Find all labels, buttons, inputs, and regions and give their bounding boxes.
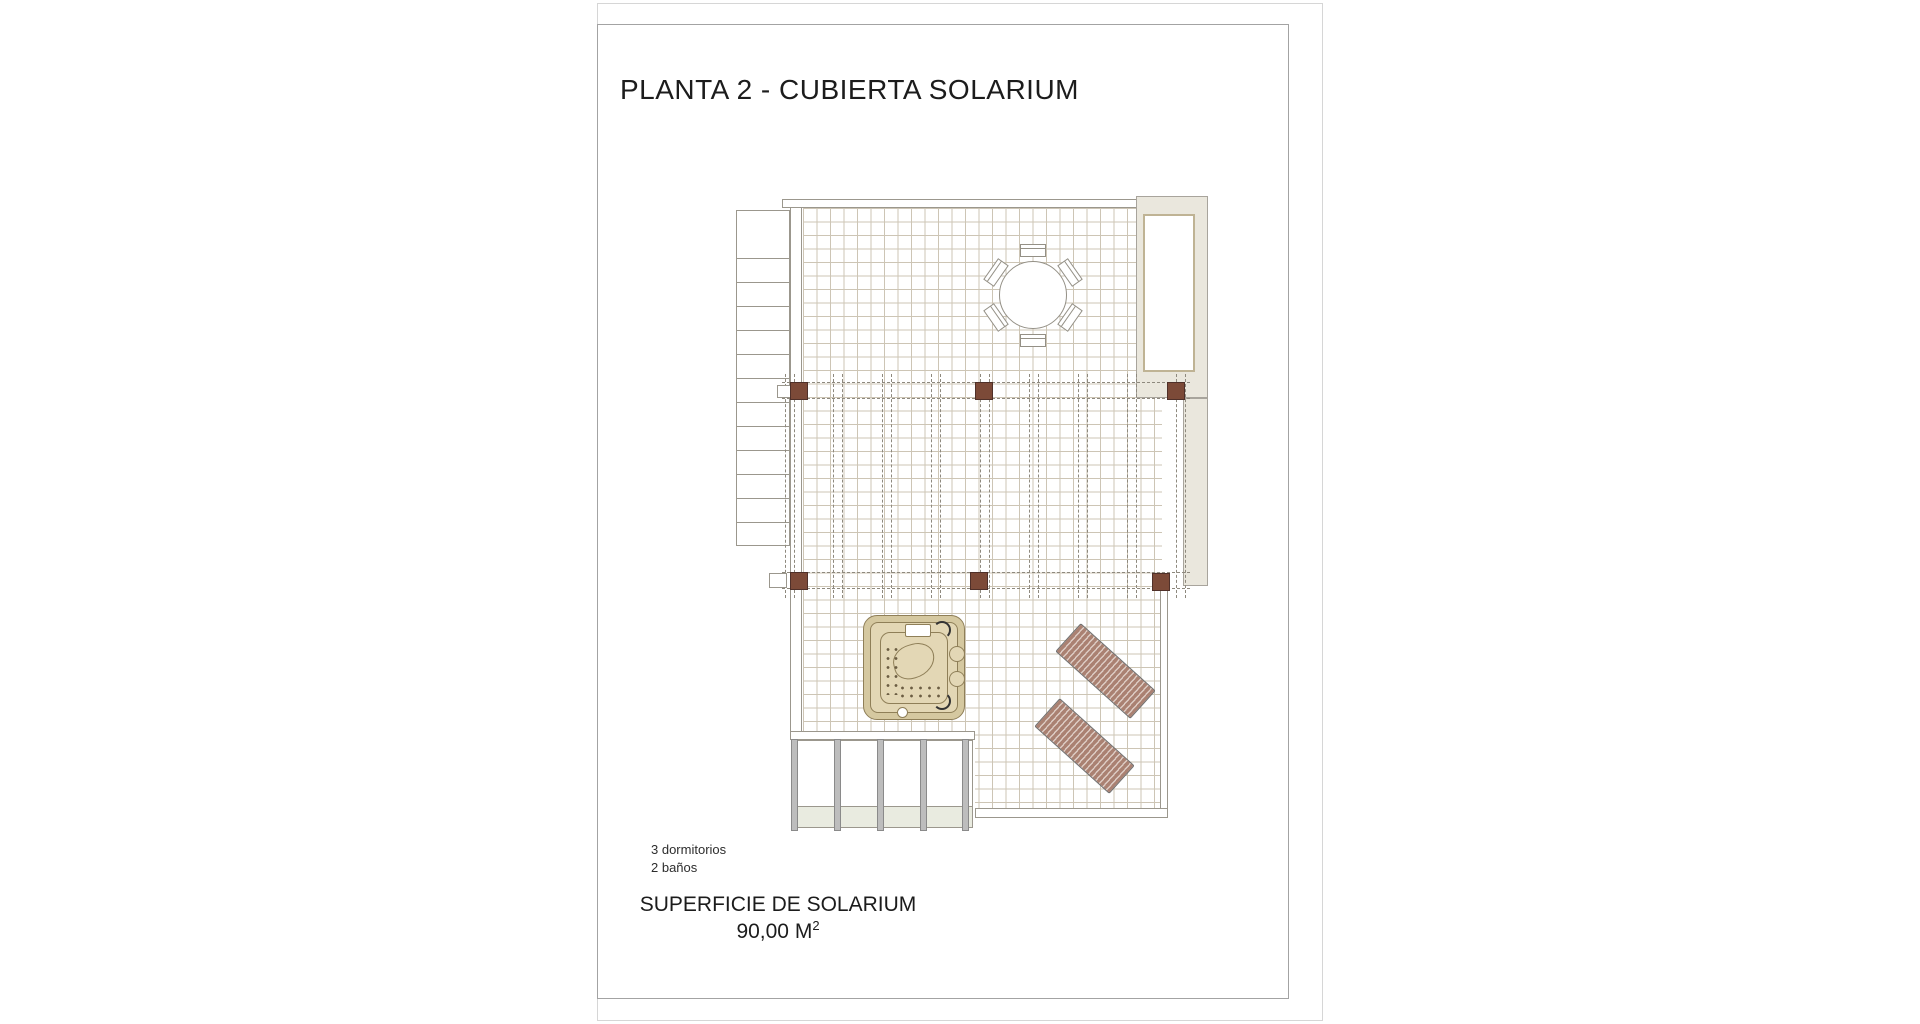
wall-top (782, 199, 1138, 208)
pergola-rafter (1029, 374, 1039, 598)
edge-bottom-right (975, 808, 1168, 818)
jacuzzi-jets (898, 684, 946, 700)
post-base-plate (769, 573, 787, 588)
pergola-post (1152, 573, 1170, 591)
pergola-rafter (785, 374, 795, 598)
pergola-post (975, 382, 993, 400)
chair (1020, 334, 1046, 347)
surface-label: SUPERFICIE DE SOLARIUM (633, 892, 923, 918)
wall-right-lower (1160, 586, 1168, 812)
jacuzzi-scallop (949, 671, 965, 687)
surface-caption: SUPERFICIE DE SOLARIUM 90,00 M2 (633, 892, 923, 946)
skylight-opening (1143, 214, 1195, 372)
note-bathrooms: 2 baños (651, 859, 726, 877)
porch-beam (834, 739, 841, 831)
porch-beam (791, 739, 798, 831)
surface-value: 90,00 M2 (633, 918, 923, 945)
wall-right-band (1183, 398, 1208, 586)
feature-notes: 3 dormitorios 2 baños (651, 841, 726, 876)
post-base-plate (777, 385, 791, 398)
chair (1020, 244, 1046, 257)
pergola-rafter (931, 374, 941, 598)
pergola-rafter (882, 374, 892, 598)
pergola-rafter (980, 374, 990, 598)
pergola-post (1167, 382, 1185, 400)
porch-beam (877, 739, 884, 831)
pergola-rafter (1078, 374, 1088, 598)
pergola-post (790, 572, 808, 590)
pergola-rafter (1176, 374, 1186, 598)
porch-beam (920, 739, 927, 831)
tiles-top-deck (803, 208, 1136, 385)
floor-plan (0, 0, 1920, 1024)
jacuzzi-scallop (949, 646, 965, 662)
pergola-post (970, 572, 988, 590)
jacuzzi-pillow (905, 624, 931, 637)
pergola-rafter (1127, 374, 1137, 598)
round-table (999, 261, 1067, 329)
pergola-post (790, 382, 808, 400)
jacuzzi-drain (897, 707, 908, 718)
note-bedrooms: 3 dormitorios (651, 841, 726, 859)
porch-beam (962, 739, 969, 831)
pergola-rafter (833, 374, 843, 598)
jacuzzi-corner-mark (933, 621, 951, 639)
